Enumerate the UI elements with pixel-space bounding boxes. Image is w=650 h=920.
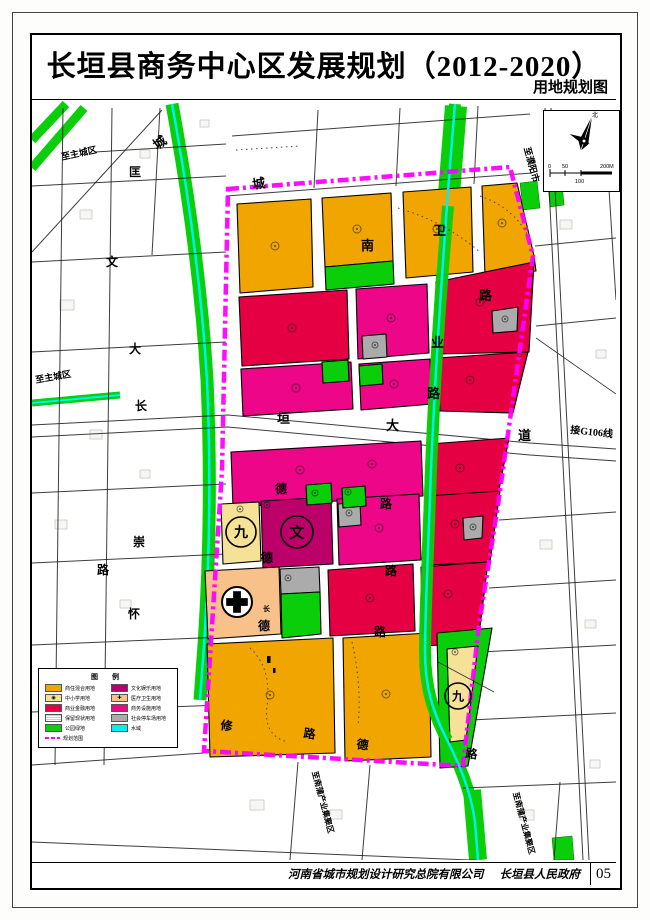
legend-label: 医疗卫生用地: [131, 695, 161, 702]
symbol-char: 文: [289, 523, 305, 541]
legend-label: 公园绿地: [65, 725, 85, 732]
legend-label: 商业金融用地: [65, 705, 95, 712]
legend-label: 水域: [131, 725, 141, 732]
landuse-blocks: [205, 183, 536, 768]
symbol-char: 九: [233, 525, 248, 541]
road-label: 崇: [133, 534, 145, 549]
legend-item: 商住混合用地: [45, 683, 95, 693]
legend-item: 社会停车场用地: [111, 713, 166, 723]
legend: 图 例 商住混合用地◉中小学用地商业金融用地保留现状用地公园绿地规划范围 文化娱…: [38, 668, 178, 748]
road-label: 城: [150, 133, 169, 153]
credits-gov: 长垣县人民政府: [500, 866, 581, 882]
north-scale-box: 北 050100200M: [543, 110, 620, 192]
legend-item: 水域: [111, 723, 166, 733]
road-label: 道: [518, 428, 531, 443]
road-label: 业: [431, 335, 444, 350]
legend-item: 文化娱乐用地: [111, 683, 166, 693]
legend-label: 商务设施用地: [131, 705, 161, 712]
road-label: 垣: [277, 411, 290, 426]
legend-label: 文化娱乐用地: [131, 685, 161, 692]
road-label: 大: [129, 341, 141, 356]
road-label: 匡: [129, 165, 141, 179]
road-label: 南: [361, 238, 374, 253]
legend-item: 商务设施用地: [111, 703, 166, 713]
road-label: 路: [385, 563, 398, 578]
legend-swatch-green: [45, 724, 62, 732]
legend-swatch-cyan: [111, 724, 128, 732]
legend-label: 商住混合用地: [65, 685, 95, 692]
page-title: 长垣县商务中心区发展规划（2012-2020）: [32, 43, 616, 85]
road-label: 路: [374, 624, 387, 639]
legend-item: 商业金融用地: [45, 703, 95, 713]
road-label: 路: [427, 386, 441, 401]
credits-company: 河南省城市规划设计研究总院有限公司: [288, 866, 484, 882]
legend-label: 中小学用地: [65, 695, 90, 702]
road-label: 接G106线: [570, 423, 614, 440]
legend-item: 保留现状用地: [45, 713, 95, 723]
scale-tick-label: 100: [575, 179, 584, 185]
legend-swatch-none: [45, 714, 62, 722]
legend-swatch-school: ◉: [45, 694, 62, 702]
legend-label: 规划范围: [63, 735, 83, 742]
legend-item: ✚医疗卫生用地: [111, 693, 166, 703]
scale-bar: 050100200M: [548, 164, 614, 185]
title-block: 长垣县商务中心区发展规划（2012-2020） 用地规划图: [32, 35, 616, 101]
legend-right-column: 文化娱乐用地✚医疗卫生用地商务设施用地社会停车场用地水域: [111, 683, 166, 733]
legend-item: ◉中小学用地: [45, 693, 95, 703]
north-arrow-icon: 北: [568, 111, 598, 152]
road-label: 路: [465, 745, 480, 762]
legend-swatch-red: [45, 704, 62, 712]
road-label: 德: [356, 736, 370, 753]
legend-left-column: 商住混合用地◉中小学用地商业金融用地保留现状用地公园绿地规划范围: [45, 683, 95, 743]
sheet-number: 05: [590, 863, 616, 885]
road-label: 怀: [128, 606, 140, 621]
road-label: 文: [106, 254, 119, 269]
legend-swatch-peach: ✚: [111, 694, 128, 702]
legend-item: 规划范围: [45, 733, 95, 743]
legend-swatch-pink: [111, 704, 128, 712]
road-label: 长: [135, 398, 148, 413]
road-label: 长: [263, 604, 271, 613]
credits: 河南省城市规划设计研究总院有限公司 长垣县人民政府: [32, 866, 590, 882]
legend-label: 保留现状用地: [65, 715, 95, 722]
symbol-char: 九: [451, 688, 464, 703]
scale-tick-label: 0: [548, 164, 551, 170]
legend-item: 公园绿地: [45, 723, 95, 733]
legend-swatch-orange: [45, 684, 62, 692]
road-label: 至主城区: [60, 144, 98, 162]
plan-sheet: 长垣县商务中心区发展规划（2012-2020） 用地规划图: [0, 0, 650, 920]
road-label: 路: [479, 288, 493, 303]
road-label: 路: [97, 562, 110, 577]
road-label: 至主城区: [34, 368, 71, 385]
road-label: 德: [261, 550, 273, 565]
scale-tick-label: 50: [562, 164, 568, 170]
legend-swatch-purple: [111, 684, 128, 692]
legend-swatch-gray: [111, 714, 128, 722]
scale-tick-label: 200M: [600, 164, 614, 170]
road-label: 至濮阳市: [522, 146, 542, 184]
road-label: 德: [275, 481, 287, 496]
legend-swatch-magenta: [45, 737, 60, 740]
north-label: 北: [592, 111, 598, 119]
road-label: 路: [380, 496, 393, 511]
road-label: 大: [386, 418, 399, 433]
road-label: 德: [258, 618, 270, 633]
road-label: 城: [251, 175, 266, 192]
page-subtitle: 用地规划图: [533, 76, 608, 97]
road-label: 至南蒲产业集聚区: [511, 791, 537, 855]
north-scale-svg: 北 050100200M: [544, 111, 619, 191]
road-label: 至南蒲产业集聚区: [310, 770, 336, 834]
legend-label: 社会停车场用地: [131, 715, 166, 722]
footer-bar: 河南省城市规划设计研究总院有限公司 长垣县人民政府 05: [32, 862, 616, 885]
legend-title: 图 例: [39, 669, 177, 682]
